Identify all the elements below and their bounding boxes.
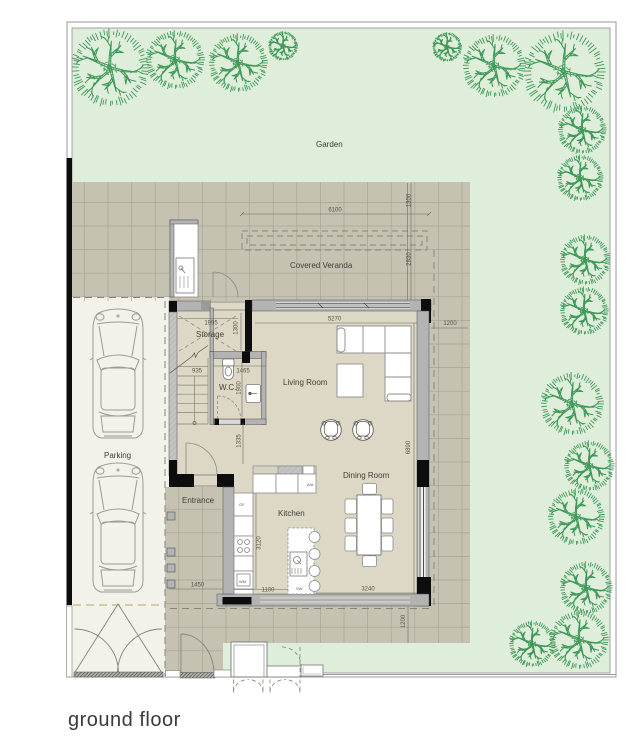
svg-text:1995: 1995 bbox=[204, 321, 218, 327]
svg-text:6100: 6100 bbox=[328, 208, 342, 214]
svg-text:Garden: Garden bbox=[316, 140, 343, 149]
svg-text:Living Room: Living Room bbox=[283, 378, 328, 387]
svg-text:1900: 1900 bbox=[237, 381, 243, 395]
svg-text:1300: 1300 bbox=[234, 321, 240, 335]
svg-text:935: 935 bbox=[192, 369, 203, 375]
svg-text:6890: 6890 bbox=[406, 440, 412, 454]
svg-text:1335: 1335 bbox=[237, 434, 243, 448]
svg-text:5270: 5270 bbox=[328, 317, 342, 323]
svg-text:3120: 3120 bbox=[257, 536, 263, 550]
svg-text:3240: 3240 bbox=[361, 587, 375, 593]
svg-text:Storage: Storage bbox=[196, 330, 225, 339]
svg-text:1200: 1200 bbox=[401, 614, 407, 628]
svg-text:1465: 1465 bbox=[236, 368, 250, 374]
svg-text:1450: 1450 bbox=[191, 583, 205, 589]
svg-text:1300: 1300 bbox=[407, 193, 413, 207]
svg-text:W.C.: W.C. bbox=[219, 383, 236, 392]
svg-text:Entrance: Entrance bbox=[182, 496, 215, 505]
svg-text:Kitchen: Kitchen bbox=[278, 509, 305, 518]
svg-text:GF: GF bbox=[239, 502, 245, 507]
svg-text:Dining Room: Dining Room bbox=[343, 471, 390, 480]
svg-text:Parking: Parking bbox=[104, 451, 131, 460]
svg-text:WM: WM bbox=[239, 579, 246, 584]
svg-text:A/A: A/A bbox=[307, 482, 314, 487]
svg-text:1100: 1100 bbox=[262, 588, 276, 594]
svg-text:1200: 1200 bbox=[443, 321, 457, 327]
svg-text:2830: 2830 bbox=[407, 252, 413, 266]
svg-text:ground floor: ground floor bbox=[68, 709, 181, 731]
svg-text:Covered Veranda: Covered Veranda bbox=[290, 261, 353, 270]
svg-text:SW: SW bbox=[296, 586, 303, 591]
